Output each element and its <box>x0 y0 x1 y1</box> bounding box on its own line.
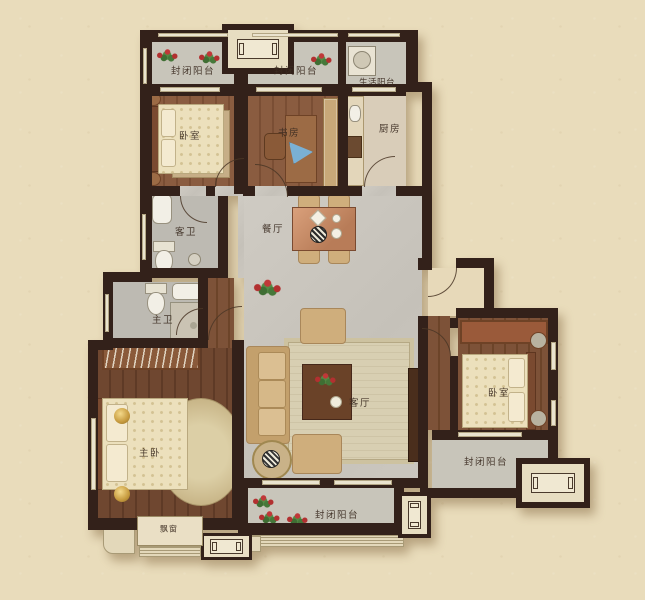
nightstand <box>530 410 547 427</box>
window <box>143 48 147 84</box>
bed-pillow <box>106 444 128 482</box>
floor-door-gap <box>180 186 206 196</box>
room-label-balcony-right: 封闭阳台 <box>464 454 508 468</box>
wall <box>338 42 346 96</box>
room-label-service-balcony: 生活阳台 <box>359 76 395 88</box>
window <box>551 400 556 426</box>
room-label-dining: 餐厅 <box>262 221 284 235</box>
bowl-icon <box>332 214 341 223</box>
floor-door-gap <box>362 186 396 196</box>
wall <box>396 186 432 196</box>
sofa-cushion <box>258 408 286 436</box>
washer-drum-icon <box>353 51 371 69</box>
room-label-master-bedroom: 主卧 <box>139 445 161 459</box>
armchair <box>292 434 342 474</box>
flower-icon <box>250 492 276 509</box>
flower-icon <box>154 46 180 63</box>
sofa-cushion <box>258 352 286 380</box>
plate-icon <box>310 226 327 243</box>
cup-icon <box>330 396 342 408</box>
bookshelf <box>323 98 338 188</box>
stove-icon <box>347 136 362 158</box>
wall <box>450 318 458 328</box>
plant-icon <box>250 275 284 297</box>
wall <box>103 338 208 348</box>
bed-pillow <box>161 139 176 167</box>
window <box>252 33 338 37</box>
window <box>160 87 220 92</box>
window <box>256 87 322 92</box>
wall <box>238 523 404 535</box>
ac-unit-box <box>201 533 252 560</box>
room-label-master-bathroom: 主卫 <box>152 312 174 326</box>
wall-lamp-icon <box>114 486 130 502</box>
window <box>348 33 400 37</box>
bed-pillow <box>508 392 525 422</box>
wall <box>206 186 215 196</box>
wall <box>338 186 362 196</box>
room-label-kitchen: 厨房 <box>379 121 401 135</box>
room-label-balcony-bottom: 封闭阳台 <box>315 507 359 521</box>
room-label-balcony-top-left: 封闭阳台 <box>171 63 215 77</box>
nightstand <box>530 332 547 349</box>
sink-icon <box>152 194 172 224</box>
ac-outdoor-unit-icon <box>408 501 422 529</box>
floor-drain-icon <box>188 253 201 266</box>
wall-lamp-icon <box>114 408 130 424</box>
window <box>158 33 228 37</box>
wall <box>422 82 432 270</box>
wall <box>243 186 255 196</box>
ac-outdoor-unit-icon <box>237 39 280 58</box>
window <box>142 214 146 260</box>
kitchen-sink-icon <box>349 105 361 122</box>
bowl-icon <box>331 228 342 239</box>
room-label-study: 书房 <box>278 125 300 139</box>
wall <box>450 356 458 434</box>
window <box>105 294 109 332</box>
sofa-cushion <box>258 380 286 408</box>
room-label-bay-window: 飘窗 <box>160 524 178 535</box>
window <box>551 342 556 370</box>
bed-pillow <box>161 109 176 137</box>
window-sill <box>250 535 404 547</box>
ac-unit-box <box>516 458 590 508</box>
floor-plan: 封闭阳台 封闭阳台 生活阳台 卧室 书房 厨房 餐厅 客卫 主卫 主卧 客厅 卧… <box>0 0 645 600</box>
window <box>458 432 522 437</box>
room-label-bedroom-right: 卧室 <box>488 385 510 399</box>
window <box>91 418 96 490</box>
window-sill <box>139 546 201 557</box>
bed-pillow <box>508 358 525 388</box>
wall <box>148 268 228 278</box>
wall <box>456 308 558 318</box>
window <box>334 480 392 485</box>
ac-outdoor-unit-icon <box>531 473 575 492</box>
room-label-guest-bathroom: 客卫 <box>175 224 197 238</box>
room-label-bedroom-top-left: 卧室 <box>179 128 201 142</box>
wall <box>218 196 228 272</box>
plate-icon <box>262 450 280 468</box>
wall <box>152 186 180 196</box>
room-label-balcony-top-mid: 封闭阳台 <box>274 63 318 77</box>
flower-icon <box>312 370 338 387</box>
wall <box>406 30 418 90</box>
ac-unit-box <box>398 492 431 538</box>
ac-outdoor-unit-icon <box>210 539 243 554</box>
wall <box>338 96 348 186</box>
room-label-living: 客厅 <box>349 395 371 409</box>
armchair <box>300 308 346 344</box>
window <box>262 480 320 485</box>
floor-corridor-strip <box>238 196 244 278</box>
exterior-ledge <box>103 528 135 554</box>
